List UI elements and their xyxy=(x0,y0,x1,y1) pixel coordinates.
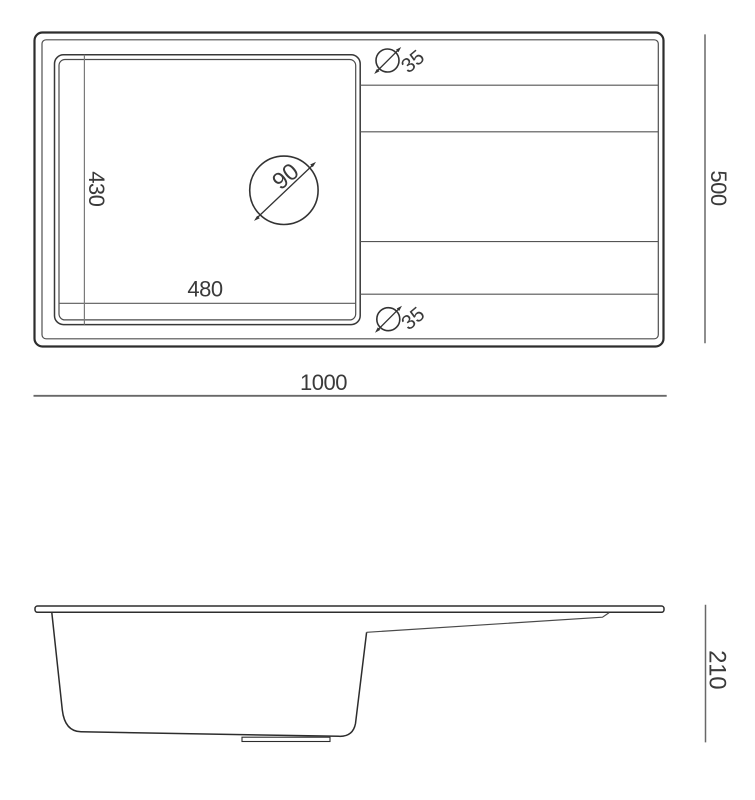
svg-text:210: 210 xyxy=(704,650,731,689)
svg-text:500: 500 xyxy=(706,170,731,205)
svg-text:1000: 1000 xyxy=(300,370,347,395)
svg-text:480: 480 xyxy=(187,276,222,301)
svg-text:430: 430 xyxy=(84,171,109,206)
